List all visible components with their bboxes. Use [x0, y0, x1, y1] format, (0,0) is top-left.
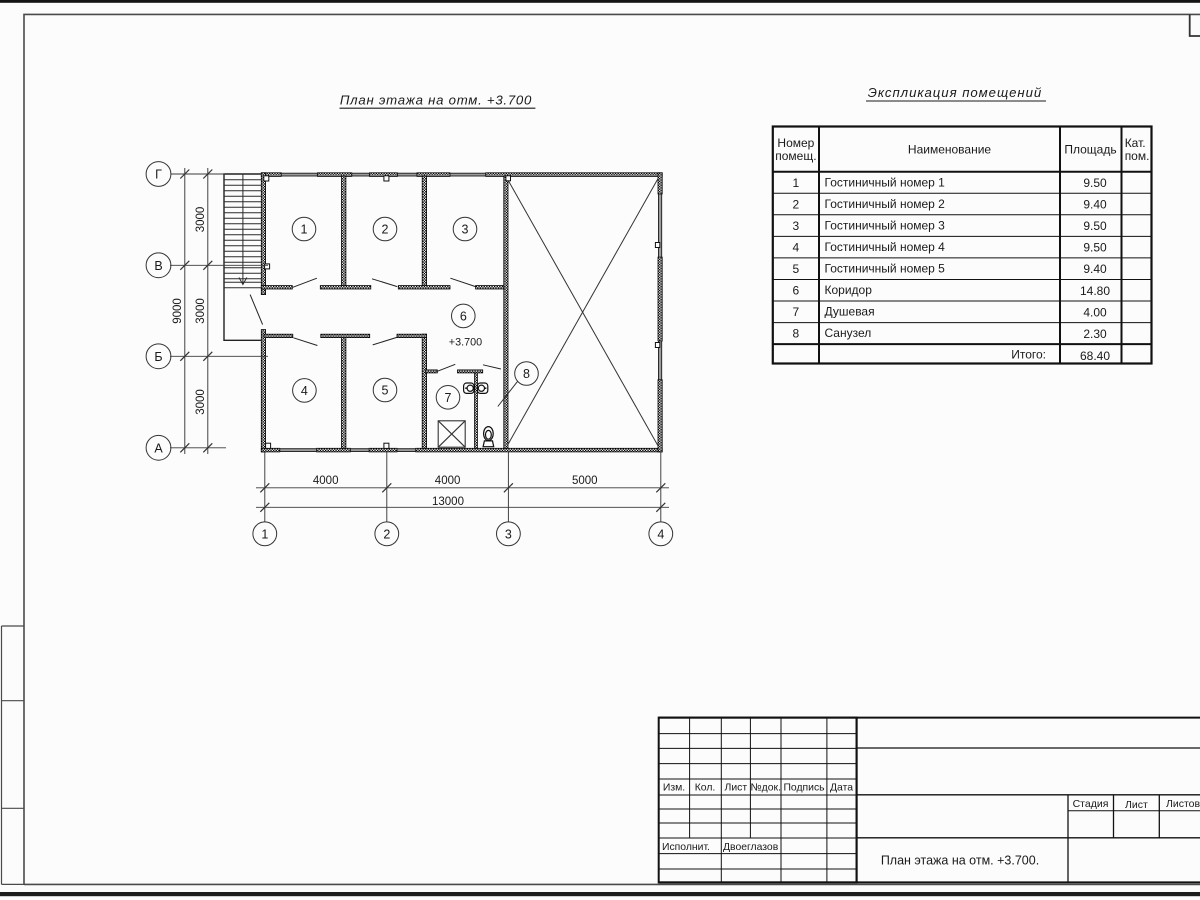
svg-text:Итого:: Итого:: [1011, 348, 1046, 362]
svg-text:9.40: 9.40: [1083, 262, 1107, 276]
svg-text:Исполнит.: Исполнит.: [662, 842, 710, 853]
svg-text:9000: 9000: [172, 298, 184, 324]
svg-text:Гостиничный номер 3: Гостиничный номер 3: [825, 218, 946, 232]
svg-text:4000: 4000: [435, 475, 461, 487]
svg-text:Кат.: Кат.: [1125, 136, 1146, 150]
svg-text:4: 4: [657, 527, 664, 541]
svg-text:+3.700: +3.700: [449, 337, 482, 349]
svg-text:3: 3: [462, 223, 469, 237]
svg-text:6: 6: [793, 284, 800, 298]
svg-text:68.40: 68.40: [1080, 349, 1110, 363]
svg-text:8: 8: [793, 327, 800, 341]
svg-text:3: 3: [505, 527, 512, 541]
svg-text:2: 2: [383, 527, 390, 541]
svg-text:1: 1: [301, 223, 308, 237]
svg-text:Коридор: Коридор: [825, 283, 873, 297]
svg-text:4000: 4000: [313, 475, 339, 487]
svg-text:3: 3: [793, 219, 800, 233]
svg-text:13000: 13000: [432, 496, 464, 508]
svg-text:2.30: 2.30: [1083, 327, 1107, 341]
svg-text:3000: 3000: [195, 389, 207, 415]
svg-text:5: 5: [382, 384, 389, 398]
svg-text:3000: 3000: [195, 207, 207, 233]
svg-text:9.50: 9.50: [1083, 176, 1107, 190]
svg-text:В: В: [154, 259, 162, 273]
svg-text:2: 2: [382, 223, 389, 237]
svg-text:Экспликация помещений: Экспликация помещений: [868, 85, 1042, 100]
svg-text:Изм.: Изм.: [663, 783, 685, 794]
svg-text:Б: Б: [154, 350, 162, 364]
svg-text:Площадь: Площадь: [1064, 143, 1116, 157]
svg-text:пом.: пом.: [1125, 149, 1150, 163]
svg-text:Гостиничный номер 5: Гостиничный номер 5: [825, 262, 946, 276]
svg-text:Наименование: Наименование: [908, 143, 992, 157]
svg-text:Гостиничный номер 1: Гостиничный номер 1: [825, 175, 946, 189]
svg-text:Душевая: Душевая: [825, 305, 875, 319]
svg-text:1: 1: [793, 176, 800, 190]
svg-text:7: 7: [793, 305, 800, 319]
svg-text:4: 4: [301, 384, 308, 398]
svg-text:Подпись: Подпись: [783, 783, 824, 794]
svg-text:7: 7: [445, 391, 452, 405]
svg-text:Лист: Лист: [725, 783, 748, 794]
svg-text:Гостиничный номер 4: Гостиничный номер 4: [825, 240, 946, 254]
svg-text:9.50: 9.50: [1083, 219, 1107, 233]
svg-text:1: 1: [261, 527, 268, 541]
svg-text:4.00: 4.00: [1083, 305, 1107, 319]
svg-text:9.40: 9.40: [1083, 198, 1107, 212]
svg-text:Номер: Номер: [777, 136, 814, 150]
svg-text:А: А: [154, 441, 163, 455]
svg-text:Г: Г: [155, 168, 162, 182]
svg-text:План этажа на отм. +3.700: План этажа на отм. +3.700: [340, 93, 532, 108]
svg-text:8: 8: [523, 367, 530, 381]
svg-text:№док.: №док.: [750, 783, 780, 794]
svg-text:Кол.: Кол.: [695, 783, 716, 794]
svg-text:Гостиничный номер 2: Гостиничный номер 2: [825, 197, 946, 211]
svg-text:5: 5: [793, 262, 800, 276]
svg-text:План этажа на отм. +3.700.: План этажа на отм. +3.700.: [881, 854, 1039, 868]
svg-text:2: 2: [793, 197, 800, 211]
svg-text:3000: 3000: [195, 298, 207, 324]
svg-text:Санузел: Санузел: [825, 326, 872, 340]
svg-text:4: 4: [793, 241, 800, 255]
svg-text:14.80: 14.80: [1080, 284, 1110, 298]
svg-text:Двоеглазов: Двоеглазов: [723, 842, 779, 853]
svg-text:9.50: 9.50: [1083, 241, 1107, 255]
svg-text:Дата: Дата: [830, 783, 853, 794]
svg-text:Листов: Листов: [1166, 798, 1200, 810]
svg-text:помещ.: помещ.: [775, 149, 816, 163]
svg-text:Лист: Лист: [1125, 799, 1148, 811]
svg-text:6: 6: [460, 309, 467, 323]
svg-text:Стадия: Стадия: [1073, 798, 1109, 810]
svg-text:5000: 5000: [572, 475, 598, 487]
